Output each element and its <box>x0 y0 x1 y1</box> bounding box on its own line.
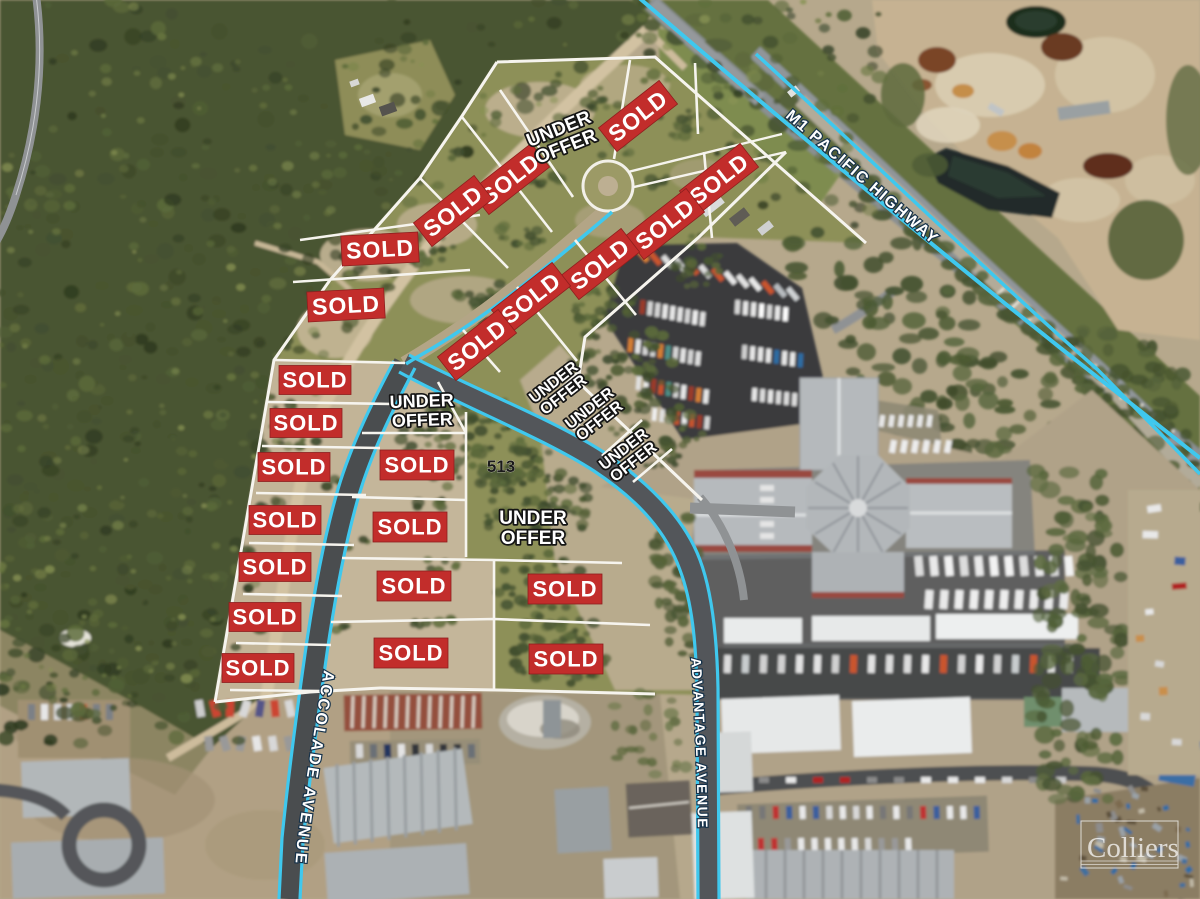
svg-text:SOLD: SOLD <box>532 577 597 602</box>
svg-text:OFFER: OFFER <box>501 528 566 549</box>
svg-text:SOLD: SOLD <box>273 411 338 436</box>
svg-text:SOLD: SOLD <box>242 555 307 580</box>
svg-text:SOLD: SOLD <box>533 647 598 672</box>
svg-text:SOLD: SOLD <box>345 234 414 264</box>
svg-text:SOLD: SOLD <box>311 290 380 320</box>
svg-text:UNDER: UNDER <box>499 508 567 529</box>
svg-text:Colliers: Colliers <box>1087 832 1179 864</box>
svg-text:OFFER: OFFER <box>392 409 454 431</box>
svg-text:SOLD: SOLD <box>225 656 290 681</box>
svg-text:SOLD: SOLD <box>384 453 449 478</box>
svg-text:SOLD: SOLD <box>252 508 317 533</box>
svg-text:SOLD: SOLD <box>261 455 326 480</box>
svg-text:SOLD: SOLD <box>377 515 442 540</box>
svg-text:SOLD: SOLD <box>282 368 347 393</box>
svg-text:SOLD: SOLD <box>378 641 443 666</box>
svg-text:SOLD: SOLD <box>232 605 297 630</box>
svg-text:SOLD: SOLD <box>381 574 446 599</box>
svg-text:513: 513 <box>487 457 515 476</box>
